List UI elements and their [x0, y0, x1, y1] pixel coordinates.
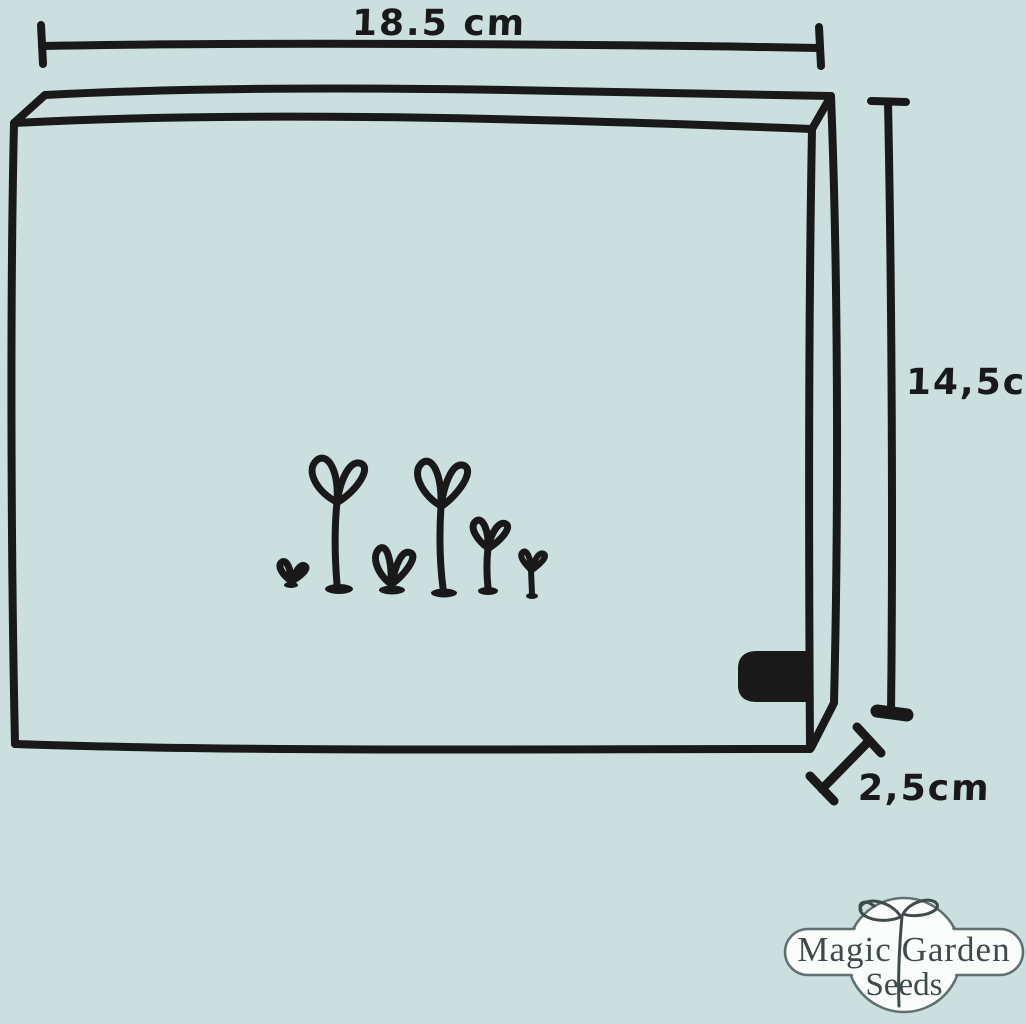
sprout-icon-6	[521, 551, 545, 599]
sprouts-drawing	[280, 458, 545, 599]
sprout-icon-1	[280, 561, 306, 588]
sprout-icon-5	[473, 520, 508, 595]
height-dimension-label: 14,5cm	[905, 362, 1026, 403]
hand-drawn-illustration	[0, 0, 1026, 1024]
sprout-icon-4	[418, 461, 468, 597]
seed-box-dimension-diagram: 18.5 cm 14,5cm 2,5cm Magic Garden Seeds	[0, 0, 1026, 1024]
box-bottom-edge	[15, 744, 810, 750]
height-dimension-line	[871, 101, 907, 715]
logo-title: Magic Garden	[781, 932, 1026, 967]
brand-logo-text: Magic Garden Seeds	[781, 932, 1026, 1002]
box-label-mark	[738, 651, 812, 702]
sprout-icon-2	[312, 458, 364, 594]
sprout-icon-3	[376, 548, 413, 595]
box-top-edge	[45, 88, 831, 96]
box-front-top-edge	[14, 117, 812, 129]
logo-subtitle: Seeds	[781, 969, 1026, 1002]
width-dimension-label: 18.5 cm	[351, 3, 527, 44]
depth-dimension-label: 2,5cm	[857, 768, 991, 809]
seed-box-drawing	[11, 88, 837, 749]
box-left-edge	[11, 123, 15, 744]
